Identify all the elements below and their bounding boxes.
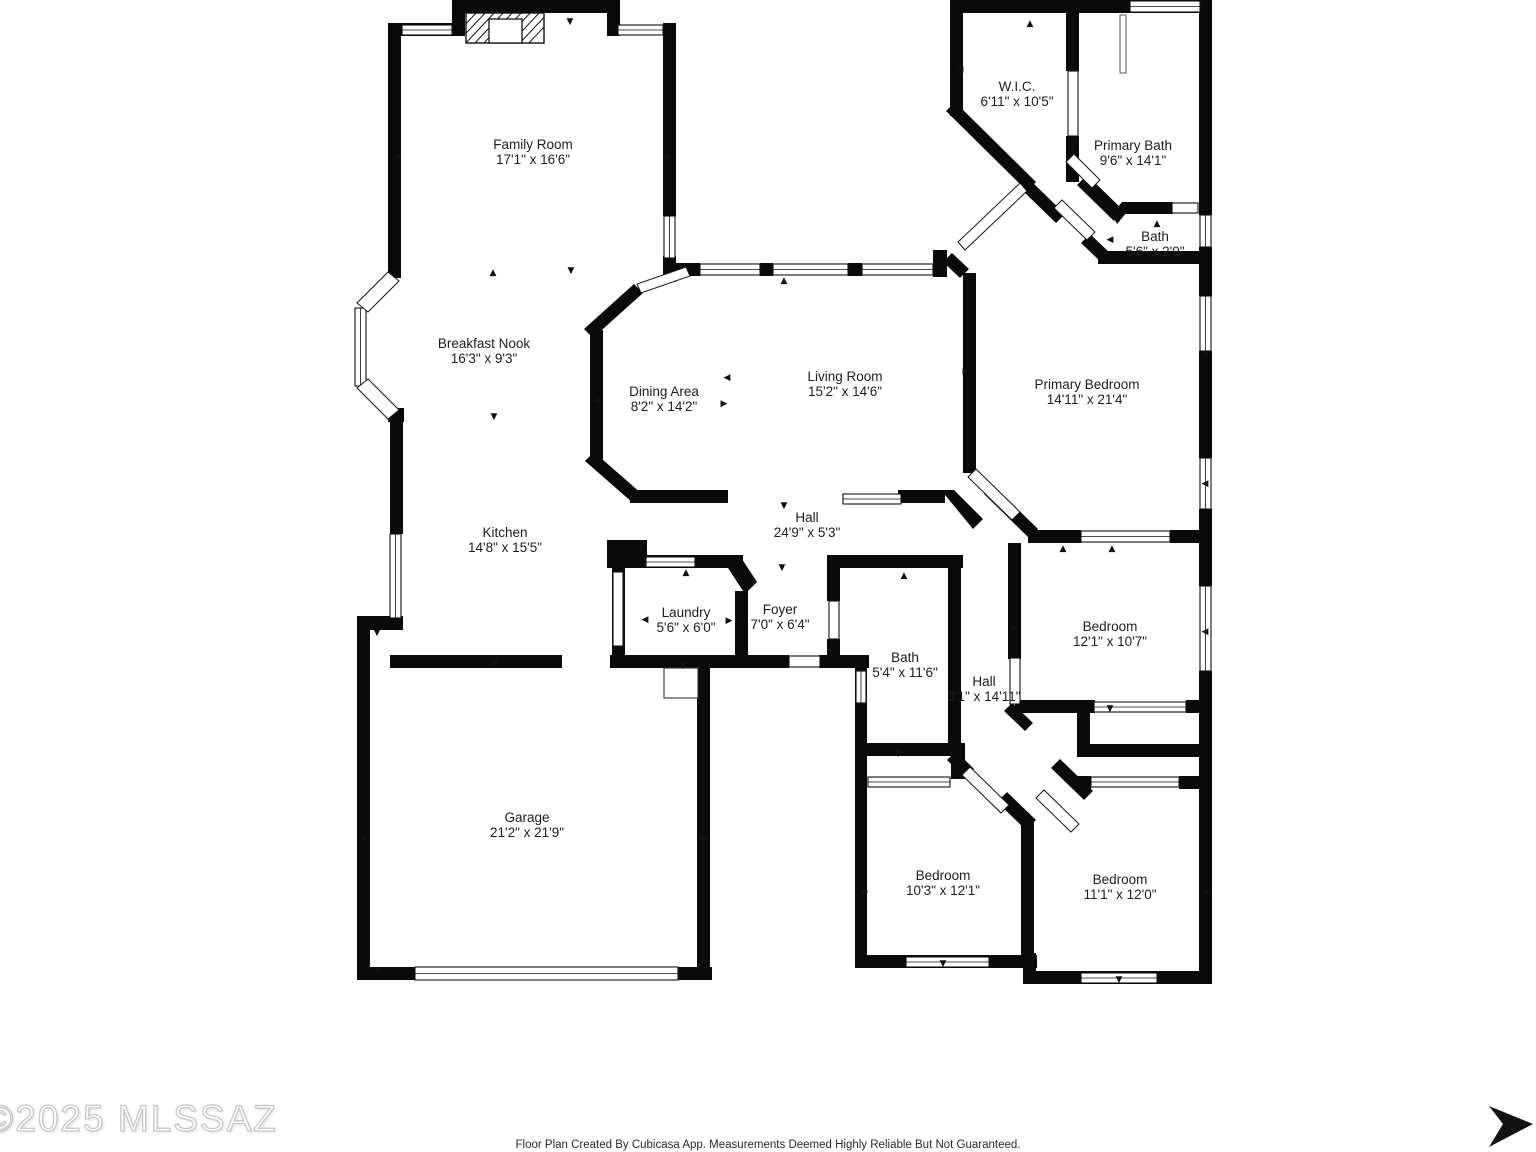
svg-text:▶: ▶ <box>665 152 672 162</box>
svg-text:▼: ▼ <box>568 266 575 276</box>
room-name: W.I.C. <box>980 79 1053 94</box>
windows <box>355 1 1211 983</box>
svg-text:▲: ▲ <box>1109 544 1116 554</box>
walls <box>357 0 1212 984</box>
room-label-bedroom-sw: Bedroom 10'3" x 12'1" <box>906 868 980 898</box>
svg-text:▲: ▲ <box>1027 19 1034 29</box>
room-dims: 7'0" x 6'4" <box>750 617 809 632</box>
room-name: Breakfast Nook <box>438 336 530 351</box>
svg-text:▲: ▲ <box>1154 219 1161 229</box>
room-label-primary-bath: Primary Bath 9'6" x 14'1" <box>1094 138 1172 168</box>
mls-watermark: ©2025 MLSSAZ <box>0 1098 278 1140</box>
water-heater <box>664 668 698 698</box>
room-label-living-room: Living Room 15'2" x 14'6" <box>807 369 882 399</box>
svg-text:▶: ▶ <box>862 887 869 897</box>
room-label-bath-2: Bath 5'6" x 2'9" <box>1125 229 1184 259</box>
svg-text:◀: ◀ <box>957 65 964 75</box>
svg-text:◀: ◀ <box>1202 349 1209 359</box>
room-dims: 9'6" x 14'1" <box>1094 153 1172 168</box>
footer-disclaimer: Floor Plan Created By Cubicasa App. Meas… <box>0 1139 1536 1151</box>
room-label-bedroom-ne: Bedroom 12'1" x 10'7" <box>1073 619 1147 649</box>
floor-plan-canvas: ▼▲▼ ◀▶▼ ◀◀▶ ▲▼▶ ◀◀◀ ◀◀▲ ▼▲▲ ▼◀▶ ▶◀▼ ▼▼▼ … <box>0 0 1536 1152</box>
svg-text:▲: ▲ <box>490 268 497 278</box>
room-label-breakfast-nook: Breakfast Nook 16'3" x 9'3" <box>438 336 530 366</box>
room-name: Bath <box>872 650 938 665</box>
svg-text:▼: ▼ <box>567 17 574 27</box>
svg-text:▼: ▼ <box>1107 704 1114 714</box>
room-dims: 5'6" x 6'0" <box>656 620 715 635</box>
svg-text:◀: ◀ <box>700 833 707 843</box>
room-dims: 14'11" x 21'4" <box>1034 392 1139 407</box>
garage-door <box>415 967 678 980</box>
svg-text:◀: ◀ <box>642 615 649 625</box>
svg-text:◀: ◀ <box>394 152 401 162</box>
svg-text:▼: ▼ <box>491 412 498 422</box>
room-label-family-room: Family Room 17'1" x 16'6" <box>493 137 573 167</box>
room-dims: 5'4" x 11'6" <box>872 665 938 680</box>
svg-text:▼: ▼ <box>940 959 947 969</box>
svg-text:◀: ◀ <box>1202 887 1209 897</box>
room-dims: 24'9" x 5'3" <box>774 525 841 540</box>
room-label-primary-bedroom: Primary Bedroom 14'11" x 21'4" <box>1034 377 1139 407</box>
svg-text:▶: ▶ <box>362 833 369 843</box>
svg-text:◀: ◀ <box>593 396 600 406</box>
room-name: Foyer <box>750 602 809 617</box>
svg-text:▼: ▼ <box>374 628 381 638</box>
room-dims: 3'1" x 14'11" <box>947 689 1020 704</box>
room-label-bedroom-se: Bedroom 11'1" x 12'0" <box>1083 872 1156 902</box>
room-label-kitchen: Kitchen 14'8" x 15'5" <box>468 525 542 555</box>
floor-plan-drawing: ▼▲▼ ◀▶▼ ◀◀▶ ▲▼▶ ◀◀◀ ◀◀▲ ▼▲▲ ▼◀▶ ▶◀▼ ▼▼▼ … <box>0 0 1536 1152</box>
svg-text:▶: ▶ <box>726 616 733 626</box>
room-name: Hall <box>947 674 1020 689</box>
svg-text:▼: ▼ <box>375 967 382 977</box>
shower-glass-panel <box>1120 15 1126 73</box>
room-name: Garage <box>490 810 564 825</box>
svg-text:▲: ▲ <box>683 568 690 578</box>
room-dims: 16'3" x 9'3" <box>438 351 530 366</box>
room-label-wic: W.I.C. 6'11" x 10'5" <box>980 79 1053 109</box>
room-name: Dining Area <box>629 384 699 399</box>
svg-text:◀: ◀ <box>1202 479 1209 489</box>
svg-text:▲: ▲ <box>1060 544 1067 554</box>
svg-text:▶: ▶ <box>963 367 970 377</box>
room-name: Primary Bedroom <box>1034 377 1139 392</box>
room-label-hall-2: Hall 3'1" x 14'11" <box>947 674 1020 704</box>
svg-text:▼: ▼ <box>1116 975 1123 985</box>
svg-text:◀: ◀ <box>1202 627 1209 637</box>
svg-text:▼: ▼ <box>680 661 687 671</box>
room-dims: 5'6" x 2'9" <box>1125 244 1184 259</box>
room-name: Bedroom <box>906 868 980 883</box>
room-label-dining-area: Dining Area 8'2" x 14'2" <box>629 384 699 414</box>
room-name: Bath <box>1125 229 1184 244</box>
svg-text:▼: ▼ <box>895 749 902 759</box>
room-dims: 15'2" x 14'6" <box>807 384 882 399</box>
room-dims: 6'11" x 10'5" <box>980 94 1053 109</box>
room-name: Laundry <box>656 605 715 620</box>
room-dims: 8'2" x 14'2" <box>629 399 699 414</box>
room-name: Bedroom <box>1073 619 1147 634</box>
svg-text:▼: ▼ <box>779 563 786 573</box>
room-label-bath: Bath 5'4" x 11'6" <box>872 650 938 680</box>
svg-text:▶: ▶ <box>1012 623 1019 633</box>
svg-text:▼: ▼ <box>492 659 499 669</box>
room-name: Bedroom <box>1083 872 1156 887</box>
svg-text:▲: ▲ <box>901 571 908 581</box>
room-dims: 17'1" x 16'6" <box>493 152 573 167</box>
svg-text:▲: ▲ <box>781 276 788 286</box>
room-label-garage: Garage 21'2" x 21'9" <box>490 810 564 840</box>
svg-text:▶: ▶ <box>721 399 728 409</box>
room-dims: 11'1" x 12'0" <box>1083 887 1156 902</box>
room-dims: 21'2" x 21'9" <box>490 825 564 840</box>
svg-text:◀: ◀ <box>1107 235 1114 245</box>
room-name: Primary Bath <box>1094 138 1172 153</box>
room-label-laundry: Laundry 5'6" x 6'0" <box>656 605 715 635</box>
room-name: Family Room <box>493 137 573 152</box>
room-label-hall: Hall 24'9" x 5'3" <box>774 510 841 540</box>
door-openings <box>357 154 1100 832</box>
room-name: Living Room <box>807 369 882 384</box>
room-dims: 12'1" x 10'7" <box>1073 634 1147 649</box>
room-name: Hall <box>774 510 841 525</box>
room-name: Kitchen <box>468 525 542 540</box>
room-label-foyer: Foyer 7'0" x 6'4" <box>750 602 809 632</box>
svg-text:◀: ◀ <box>724 373 731 383</box>
room-dims: 10'3" x 12'1" <box>906 883 980 898</box>
room-dims: 14'8" x 15'5" <box>468 540 542 555</box>
